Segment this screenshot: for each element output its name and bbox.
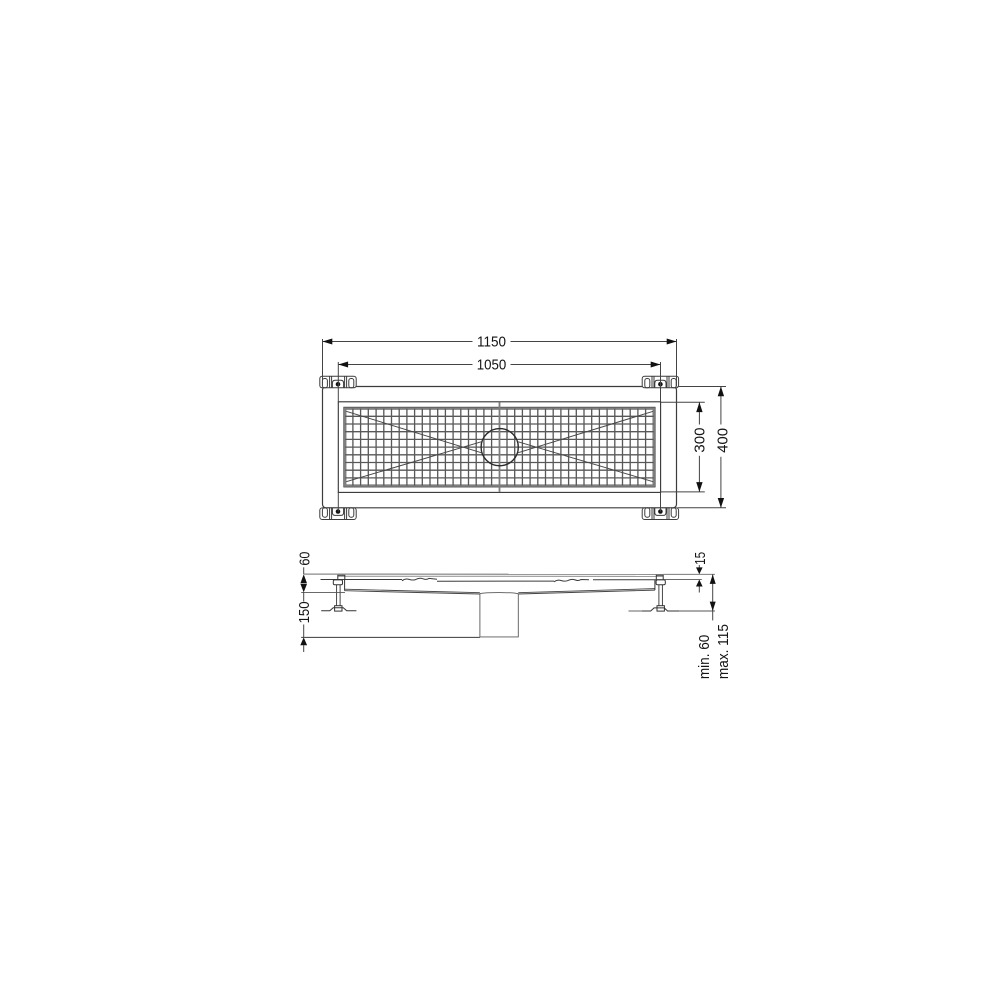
svg-text:1050: 1050 xyxy=(477,356,507,373)
svg-text:300: 300 xyxy=(692,428,709,453)
svg-text:min. 60: min. 60 xyxy=(696,635,713,680)
svg-text:60: 60 xyxy=(296,552,313,566)
svg-text:400: 400 xyxy=(715,428,732,453)
svg-text:150: 150 xyxy=(296,601,313,623)
svg-text:max. 115: max. 115 xyxy=(715,624,732,679)
svg-text:1150: 1150 xyxy=(477,333,506,350)
svg-text:15: 15 xyxy=(692,552,709,565)
